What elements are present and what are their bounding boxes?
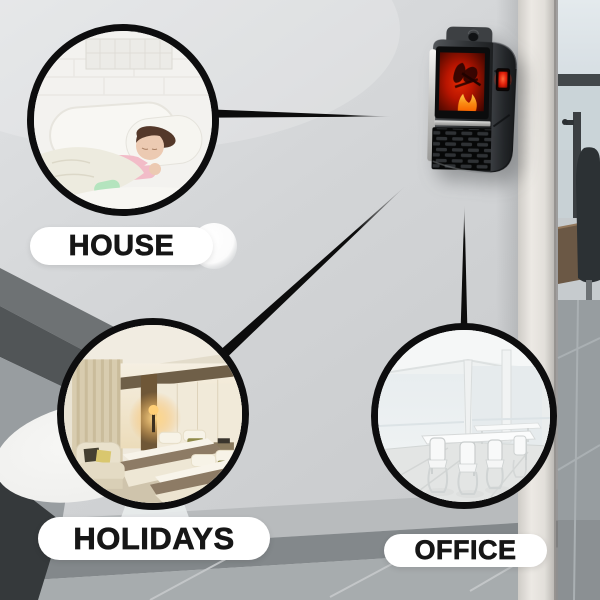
column-edge <box>554 0 558 600</box>
office-chair-silhouette <box>576 147 600 282</box>
holidays-label-text: HOLIDAYS <box>73 521 234 557</box>
wooden-desk <box>558 220 600 284</box>
glass-balustrade <box>558 86 600 218</box>
bed-edge <box>34 187 212 209</box>
meeting-room-scene <box>378 330 550 502</box>
wall-shelf-decor <box>86 39 172 69</box>
child-sleeping-scene <box>34 31 212 209</box>
connector-line-house <box>216 110 392 118</box>
product-infographic: HOUSE <box>0 0 600 600</box>
hotel-room-scene <box>64 325 242 503</box>
led-power-display <box>498 72 507 88</box>
adjacent-room-scene <box>558 0 600 600</box>
corner-column <box>464 360 472 442</box>
office-label: OFFICE <box>384 534 547 567</box>
connector-line-office <box>461 204 468 330</box>
house-label: HOUSE <box>30 227 213 265</box>
house-label-text: HOUSE <box>69 230 175 263</box>
wall-column <box>518 0 556 600</box>
armchair <box>76 442 125 489</box>
tiled-floor <box>558 300 600 600</box>
window-sky <box>558 0 600 86</box>
window-bar <box>558 74 600 86</box>
connector-line-holidays <box>222 186 405 356</box>
office-circle-photo <box>371 323 557 509</box>
house-circle-photo <box>27 24 219 216</box>
flame-display-screen <box>439 52 485 111</box>
heater-drawing <box>418 25 523 175</box>
holidays-circle-photo <box>57 318 249 510</box>
lamp <box>148 405 158 415</box>
office-label-text: OFFICE <box>415 535 517 566</box>
balustrade-post <box>573 112 581 218</box>
wall-heater-product <box>418 25 523 175</box>
holidays-label: HOLIDAYS <box>38 517 270 560</box>
